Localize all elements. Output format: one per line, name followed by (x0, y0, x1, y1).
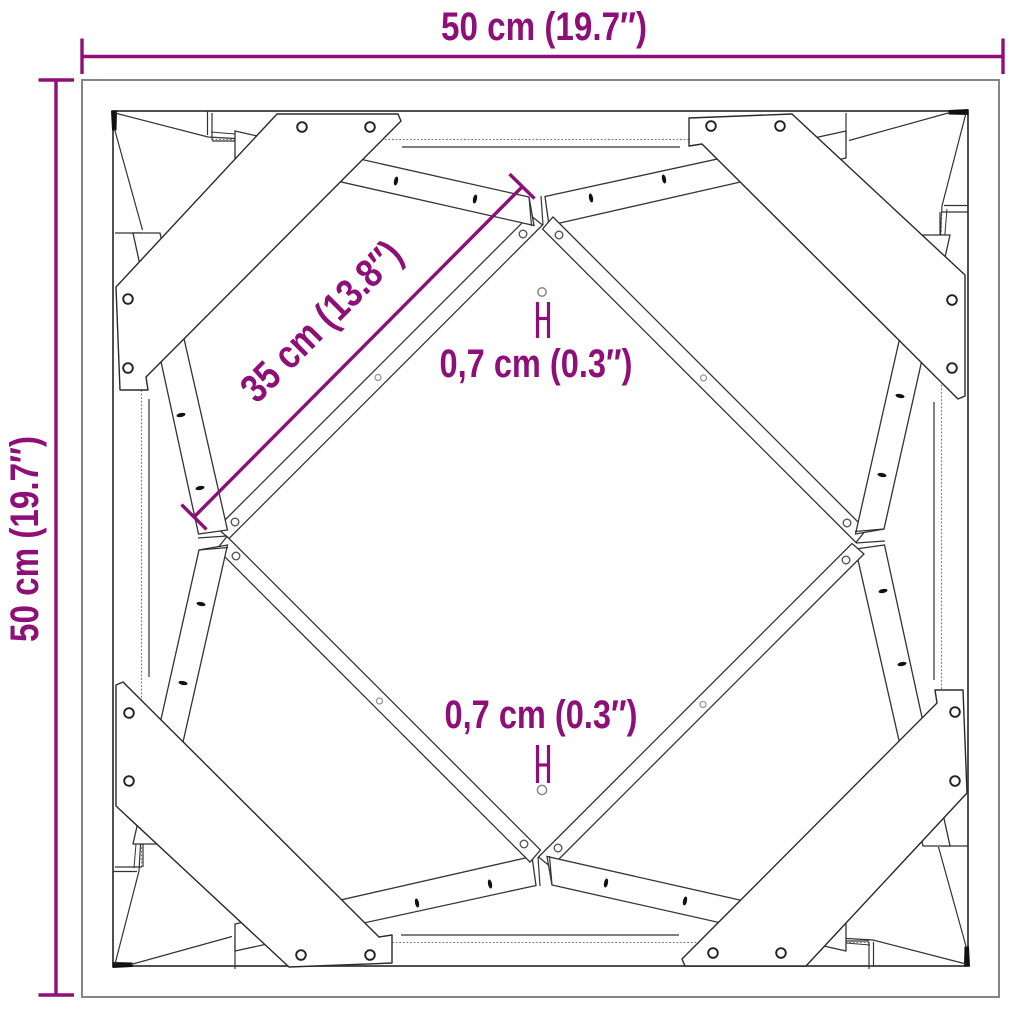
svg-text:50 cm (19.7″): 50 cm (19.7″) (3, 436, 47, 642)
svg-text:0,7 cm (0.3″): 0,7 cm (0.3″) (440, 342, 633, 386)
svg-text:50 cm (19.7″): 50 cm (19.7″) (441, 5, 647, 49)
svg-text:0,7 cm (0.3″): 0,7 cm (0.3″) (445, 693, 638, 737)
